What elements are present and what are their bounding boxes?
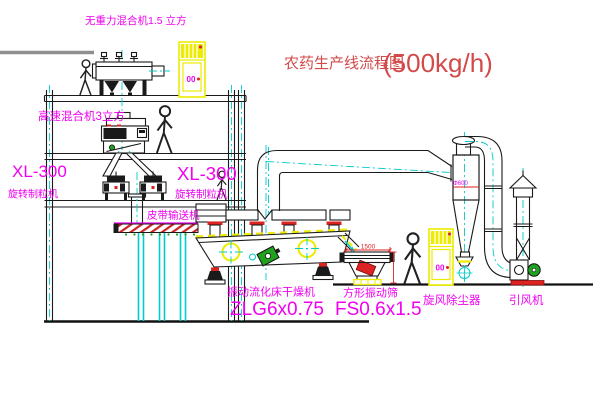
indicator-light-icon [199,45,202,48]
rain-cap-icon [510,176,536,189]
panel-display: 00 [187,75,196,84]
control-cabinet-right: 00 [429,229,453,285]
vibrating-screen [340,247,397,285]
mixer-motor-icon [109,145,114,150]
dimension-cyclone-diameter: Φ600 [453,181,468,187]
conveyor-legs [139,233,186,322]
induced-draft-fan [510,260,544,285]
label-fan: 引风机 [509,293,544,307]
label-screen-model: FS0.6x1.5 [335,299,422,320]
cad-flow-diagram: 00 [0,0,600,403]
label-cyclone: 旋风除尘器 [423,293,481,307]
mixer-nozzles [100,53,138,63]
operator-figure [404,233,420,284]
indicator-light-icon [446,266,449,269]
label-granulator-left-name: 旋转制粒机 [8,188,58,201]
indicator-light-icon [197,78,200,81]
cyclone-separator [453,132,480,282]
label-dryer-name: 振动流化床干燥机 [227,285,315,299]
y-splitter-chute [103,151,156,177]
label-gravity-mixer: 无重力混合机1.5 立方 [85,14,187,27]
operator-figure [157,106,172,153]
label-belt-conveyor: 皮带输送机 [147,209,200,222]
belt-conveyor [114,223,199,236]
label-screen-name: 方形振动筛 [343,286,398,300]
operator-figure [80,60,91,95]
return-pipe [465,137,519,278]
control-cabinet-top: 00 [179,42,205,97]
dimension-screen-length: 1500 [361,244,376,251]
diagram-canvas: 00 [0,0,600,403]
label-dryer-model: ZLG6x0.75 [230,299,324,320]
diagram-title-capacity: (500kg/h) [383,48,493,78]
conveyor-rollers [125,233,195,235]
label-granulator-right-model: XL-300 [177,163,237,184]
granulator-right [140,172,166,201]
label-high-speed-mixer: 高速混合机3立方 [38,109,125,123]
label-granulator-left-model: XL-300 [12,162,67,181]
indicator-light-icon [448,233,451,236]
panel-display: 00 [436,264,445,273]
exhaust-duct [258,147,453,214]
label-granulator-right-name: 旋转制粒机 [175,188,228,201]
